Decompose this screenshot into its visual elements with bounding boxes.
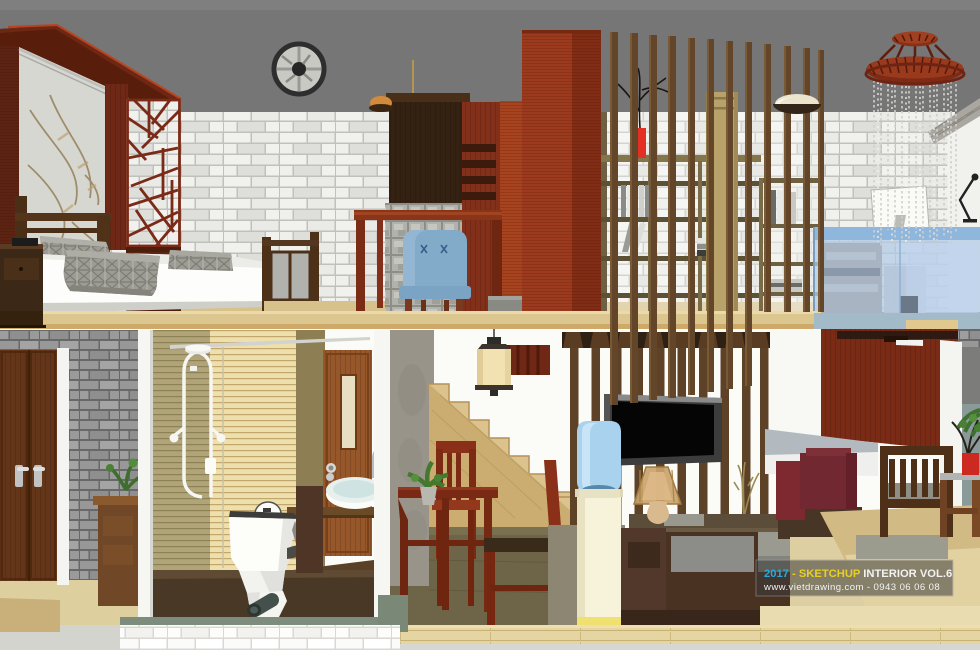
svg-text:2017 - SKETCHUP INTERIOR VOL.6: 2017 - SKETCHUP INTERIOR VOL.6 bbox=[764, 568, 952, 580]
svg-text:www.vietdrawing.com - 0943 06: www.vietdrawing.com - 0943 06 06 08 bbox=[763, 582, 940, 593]
